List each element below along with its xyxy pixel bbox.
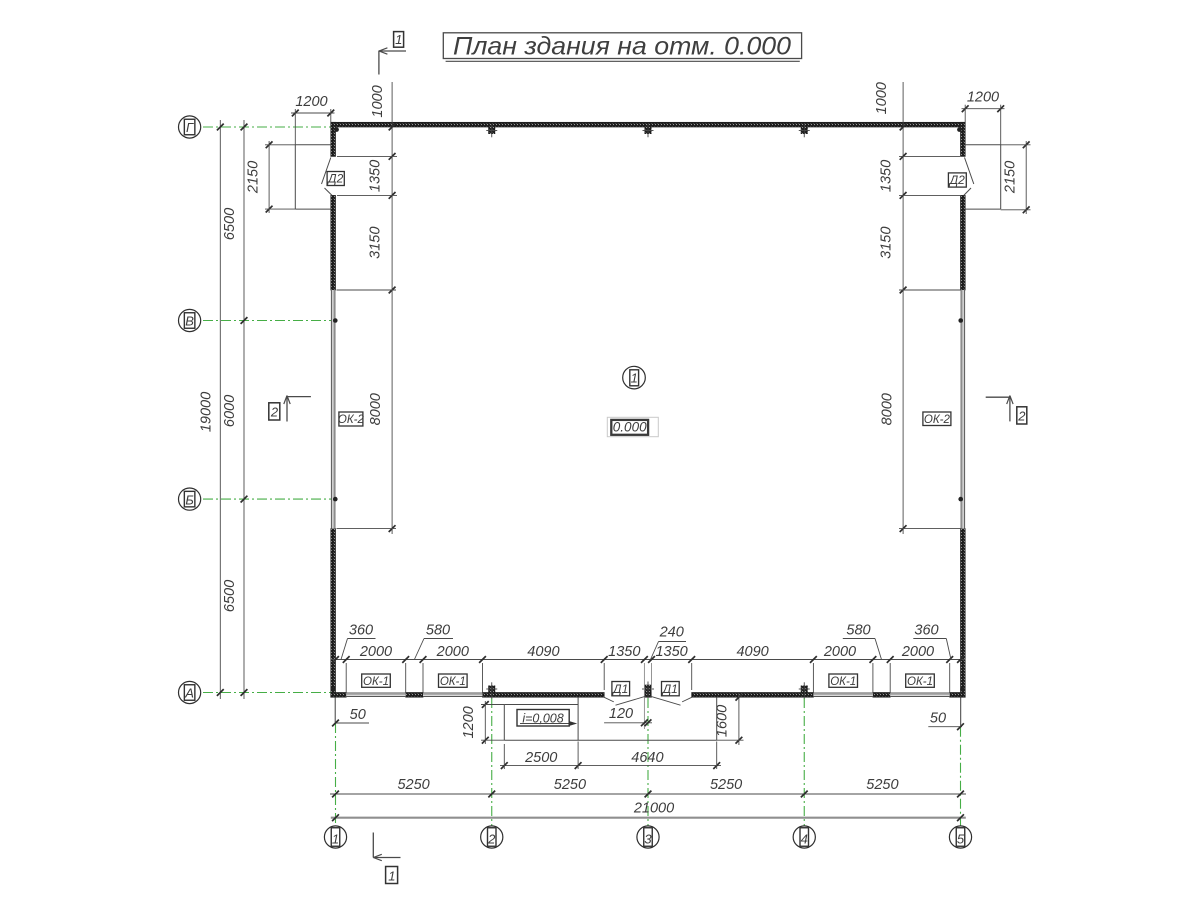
svg-text:1350: 1350 [655,644,687,660]
svg-text:Д1: Д1 [611,682,628,696]
svg-text:ОК-2: ОК-2 [338,414,365,426]
svg-text:580: 580 [426,623,450,639]
svg-text:ОК-1: ОК-1 [907,676,933,688]
svg-text:Д2: Д2 [948,173,965,187]
svg-text:5: 5 [957,832,965,847]
svg-text:План здания на отм. 0.000: План здания на отм. 0.000 [453,33,791,61]
svg-text:2150: 2150 [246,161,262,194]
svg-text:3: 3 [644,832,652,847]
svg-text:1: 1 [395,32,402,47]
svg-text:6500: 6500 [222,580,238,612]
svg-text:2500: 2500 [524,750,557,766]
svg-text:1600: 1600 [714,705,730,737]
svg-text:2000: 2000 [359,644,392,660]
svg-text:1350: 1350 [608,644,640,660]
svg-text:4640: 4640 [631,750,663,766]
svg-text:50: 50 [930,711,946,727]
svg-text:ОК-1: ОК-1 [440,676,466,688]
svg-text:5250: 5250 [554,777,586,793]
svg-text:2000: 2000 [901,644,934,660]
svg-text:1: 1 [388,868,395,883]
svg-text:580: 580 [846,623,870,639]
svg-text:1200: 1200 [967,90,999,106]
svg-text:ОК-1: ОК-1 [830,676,856,688]
svg-text:240: 240 [659,625,684,641]
svg-text:Г: Г [186,120,194,135]
svg-text:360: 360 [349,623,373,639]
svg-text:50: 50 [350,707,366,723]
svg-text:1200: 1200 [461,706,477,738]
svg-text:0.000: 0.000 [613,420,647,435]
svg-text:2000: 2000 [823,644,856,660]
svg-text:В: В [185,314,194,329]
svg-text:1350: 1350 [879,160,895,192]
svg-text:1350: 1350 [368,160,384,192]
svg-text:21000: 21000 [633,801,674,817]
svg-text:360: 360 [914,623,938,639]
svg-text:1200: 1200 [295,94,327,110]
svg-text:2: 2 [270,405,279,420]
svg-text:3150: 3150 [879,227,895,259]
svg-text:5250: 5250 [710,777,742,793]
svg-text:1: 1 [631,370,638,385]
svg-text:120: 120 [609,706,633,722]
svg-text:2000: 2000 [436,644,469,660]
svg-text:ОК-1: ОК-1 [363,676,389,688]
svg-text:Б: Б [185,492,194,507]
svg-text:2: 2 [1017,409,1026,424]
svg-text:4090: 4090 [527,644,559,660]
svg-text:19000: 19000 [199,392,215,432]
svg-text:8000: 8000 [368,393,384,425]
svg-text:2: 2 [487,832,496,847]
svg-text:3150: 3150 [368,227,384,259]
svg-text:1000: 1000 [874,82,890,114]
svg-text:1000: 1000 [370,85,386,117]
svg-text:5250: 5250 [397,777,429,793]
svg-text:Д1: Д1 [661,682,678,696]
svg-text:А: А [184,686,194,701]
svg-text:4: 4 [801,832,808,847]
svg-text:8000: 8000 [880,393,896,425]
svg-text:6000: 6000 [222,395,238,427]
svg-text:Д2: Д2 [326,172,343,186]
svg-text:6500: 6500 [222,208,238,240]
svg-text:ОК-2: ОК-2 [924,414,951,426]
svg-text:1: 1 [332,832,339,847]
svg-text:5250: 5250 [866,777,898,793]
svg-text:4090: 4090 [736,644,768,660]
svg-text:2150: 2150 [1003,161,1019,194]
